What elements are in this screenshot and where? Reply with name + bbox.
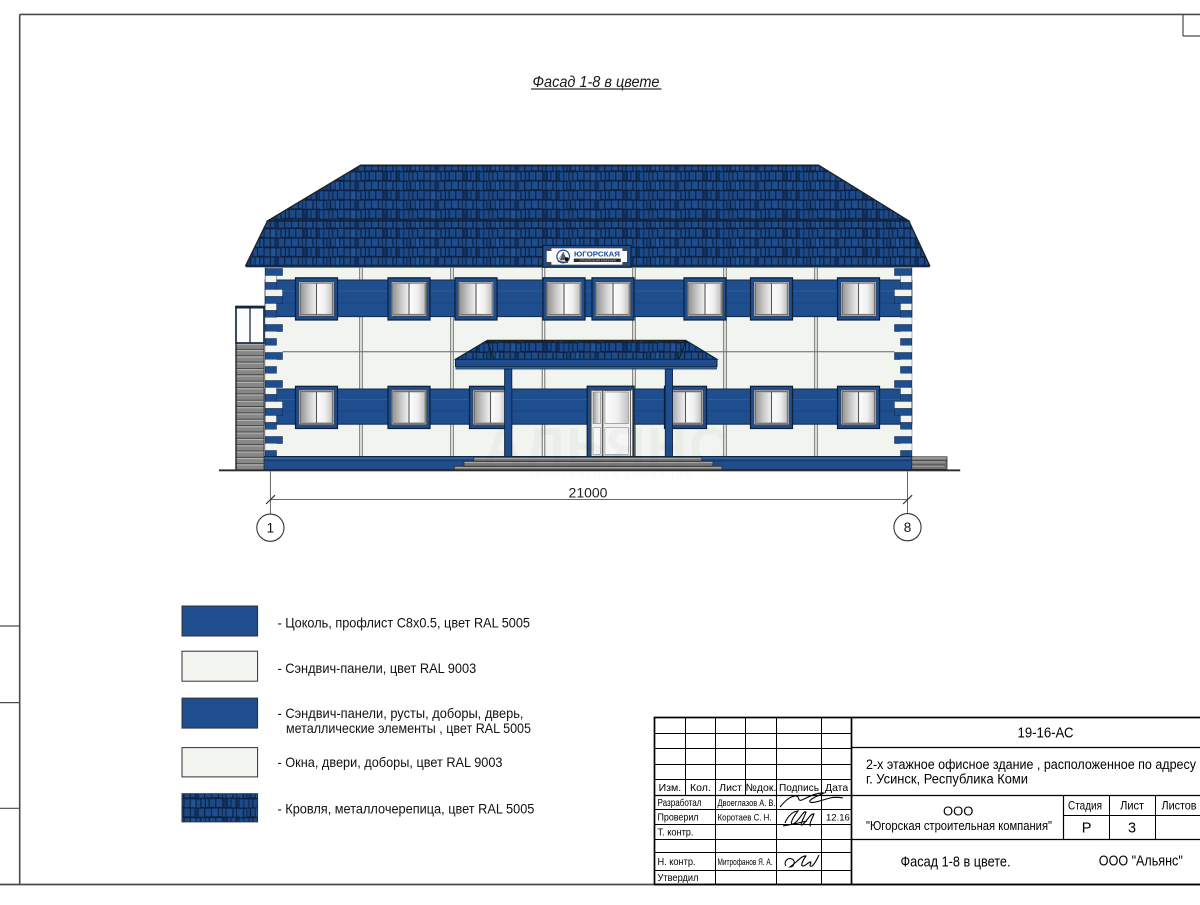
svg-text:- Сэндвич-панели, русты, добор: - Сэндвич-панели, русты, доборы, дверь, (278, 705, 524, 721)
svg-text:- Кровля, металлочерепица, цве: - Кровля, металлочерепица, цвет RAL 5005 (278, 801, 535, 817)
svg-text:2-х этажное офисное здание , р: 2-х этажное офисное здание , расположенн… (866, 757, 1197, 773)
svg-text:1: 1 (267, 520, 275, 535)
svg-text:металлические элементы , цвет: металлические элементы , цвет RAL 5005 (286, 720, 531, 736)
svg-text:Н. контр.: Н. контр. (658, 857, 696, 868)
svg-text:Листов: Листов (1162, 799, 1197, 813)
svg-text:8: 8 (904, 520, 912, 535)
svg-text:№док.: №док. (746, 782, 777, 794)
svg-text:Кол.: Кол. (690, 782, 711, 794)
svg-text:Разработал: Разработал (658, 797, 702, 809)
svg-text:Двоеглазов А. В.: Двоеглазов А. В. (718, 798, 776, 808)
svg-text:Подпись: Подпись (779, 782, 820, 794)
svg-text:Т. контр.: Т. контр. (658, 828, 694, 839)
svg-text:Проверил: Проверил (658, 813, 699, 824)
svg-text:Стадия: Стадия (1068, 799, 1102, 813)
svg-text:- Окна, двери, доборы, цвет RA: - Окна, двери, доборы, цвет RAL 9003 (278, 754, 503, 770)
svg-text:- Цоколь, профлист С8х0.5, цве: - Цоколь, профлист С8х0.5, цвет RAL 5005 (278, 614, 531, 630)
svg-text:19-16-АС: 19-16-АС (1018, 726, 1074, 742)
svg-text:12.16: 12.16 (826, 813, 850, 824)
svg-text:ООО "Альянс": ООО "Альянс" (1099, 853, 1183, 869)
svg-text:- Сэндвич-панели, цвет RAL 900: - Сэндвич-панели, цвет RAL 9003 (278, 660, 477, 676)
svg-text:Митрофанов Я. А.: Митрофанов Я. А. (718, 857, 773, 867)
svg-text:г. Усинск, Республика Коми: г. Усинск, Республика Коми (866, 772, 1028, 788)
svg-text:ООО: ООО (943, 804, 973, 819)
svg-text:Лист: Лист (719, 782, 742, 794)
svg-text:Коротаев С. Н.: Коротаев С. Н. (718, 813, 772, 823)
svg-text:Дата: Дата (825, 782, 848, 794)
svg-text:21000: 21000 (569, 484, 608, 500)
svg-text:СТРОИТЕЛЬНАЯ КОМПАНИЯ: СТРОИТЕЛЬНАЯ КОМПАНИЯ (521, 470, 694, 480)
svg-text:"Югорская строительная компани: "Югорская строительная компания" (866, 818, 1052, 833)
svg-text:Р: Р (1082, 820, 1092, 836)
svg-text:Лист: Лист (1120, 799, 1144, 813)
svg-text:АЛЬЯНС: АЛЬЯНС (483, 416, 730, 478)
svg-text:СТРОИТЕЛЬНАЯ КОМПАНИЯ: СТРОИТЕЛЬНАЯ КОМПАНИЯ (579, 258, 616, 262)
svg-text:Утвердил: Утвердил (658, 873, 699, 884)
svg-text:Изм.: Изм. (659, 782, 682, 794)
svg-text:3: 3 (1128, 820, 1136, 836)
svg-text:Фасад 1-8 в цвете.: Фасад 1-8 в цвете. (901, 855, 1011, 871)
svg-text:ЮГОРСКАЯ: ЮГОРСКАЯ (574, 249, 620, 258)
